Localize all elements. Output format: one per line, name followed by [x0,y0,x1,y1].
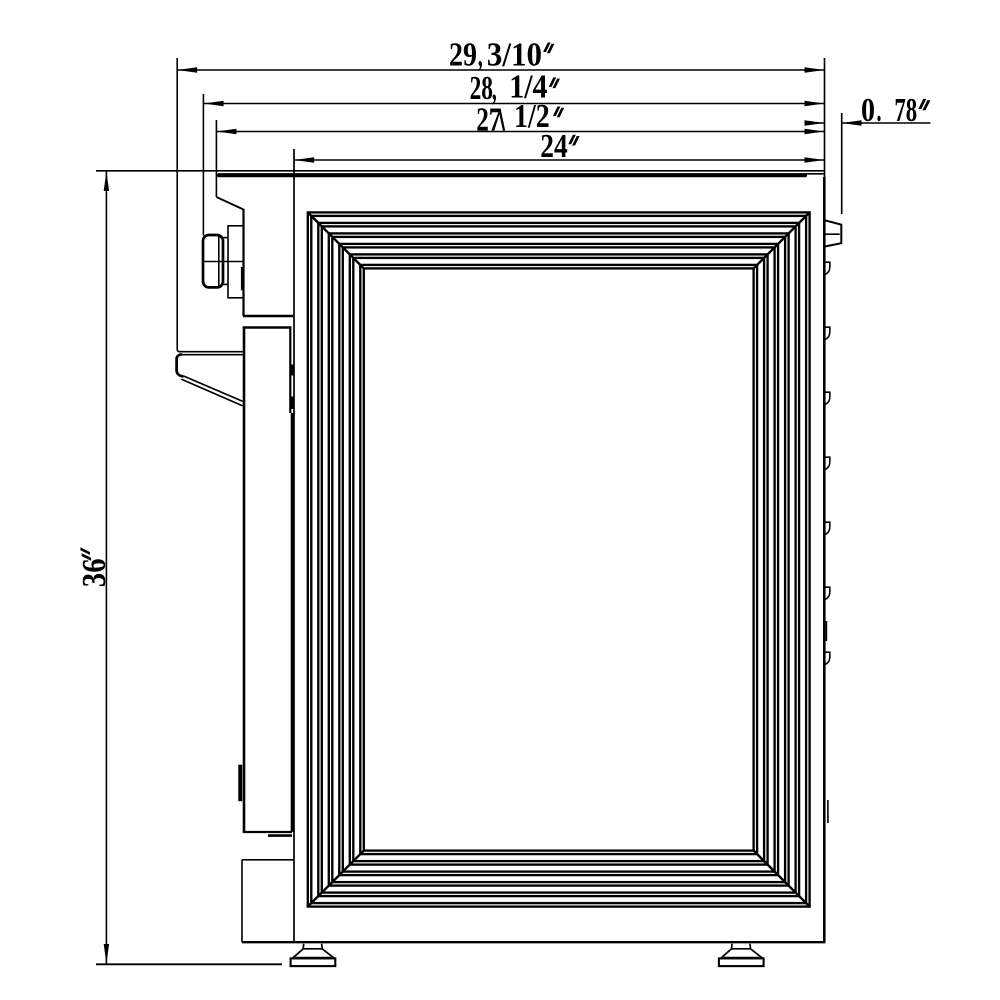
svg-text:36: 36 [76,558,113,587]
svg-text:27: 27 [476,101,501,138]
svg-text:,: , [478,37,483,74]
svg-text:29: 29 [449,37,477,74]
